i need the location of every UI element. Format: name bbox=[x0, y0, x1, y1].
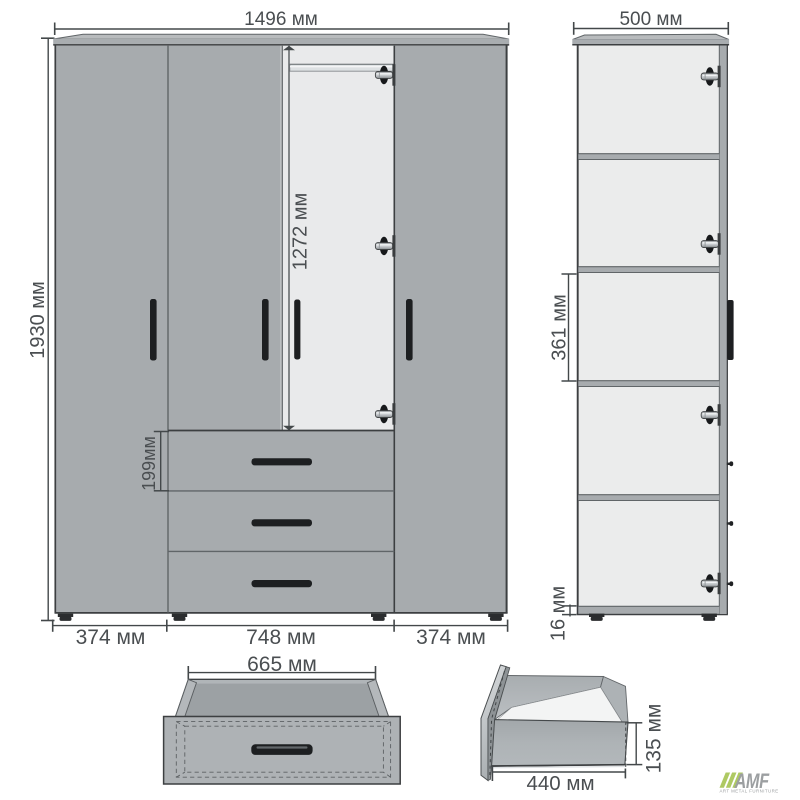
svg-text:135 мм: 135 мм bbox=[643, 704, 666, 774]
svg-text:440 мм: 440 мм bbox=[526, 772, 594, 795]
svg-text:361 мм: 361 мм bbox=[549, 294, 571, 360]
svg-text:374 мм: 374 мм bbox=[416, 626, 486, 649]
svg-text:199мм: 199мм bbox=[139, 436, 159, 491]
svg-text:1930 мм: 1930 мм bbox=[27, 281, 49, 359]
svg-text:500 мм: 500 мм bbox=[619, 9, 682, 30]
svg-text:665 мм: 665 мм bbox=[247, 653, 317, 676]
svg-text:16 мм: 16 мм bbox=[548, 586, 570, 641]
svg-text:374 мм: 374 мм bbox=[76, 626, 146, 649]
svg-text:1496 мм: 1496 мм bbox=[244, 9, 318, 30]
svg-text:1272 мм: 1272 мм bbox=[290, 193, 312, 271]
svg-text:748 мм: 748 мм bbox=[246, 626, 316, 649]
svg-text:ART METAL FURNITURE: ART METAL FURNITURE bbox=[720, 788, 779, 793]
